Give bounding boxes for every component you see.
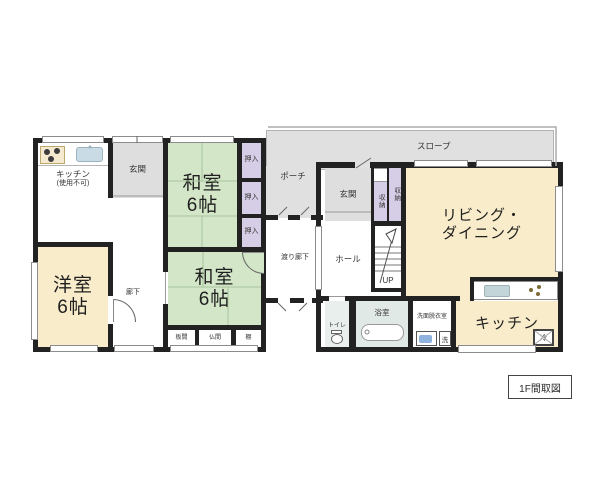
- wall-segment: [242, 178, 261, 182]
- floorplan-1f: スロープ ポーチ キッチン (使用不可) 玄関 和室 6帖 押入 押入 押入 洋…: [0, 0, 600, 499]
- closet-oshiire-1: 押入: [242, 143, 261, 178]
- storage1-label: 収納: [377, 194, 384, 209]
- counter-edge-line: [38, 165, 108, 166]
- washing-machine-icon: 洗: [439, 331, 451, 346]
- bath-label: 浴室: [375, 309, 390, 318]
- wall-segment: [470, 277, 558, 281]
- wall-segment: [320, 162, 355, 168]
- wall-segment: [242, 214, 261, 218]
- room-living-dining: リビング・ ダイニング: [406, 168, 558, 281]
- washitsu2-label: 和室: [194, 267, 234, 289]
- caption-label: 1F間取図: [519, 380, 561, 395]
- room-yoshitsu: 洋室 6帖: [38, 247, 108, 347]
- senmen-label: 洗面脱衣室: [417, 314, 447, 321]
- window: [50, 345, 98, 352]
- wall-segment: [290, 298, 304, 303]
- washitsu1-size: 6帖: [187, 195, 219, 217]
- window: [114, 345, 154, 352]
- wall-segment: [387, 168, 389, 221]
- window: [42, 136, 104, 143]
- window: [31, 262, 38, 340]
- washitsu2-size: 6帖: [199, 289, 231, 311]
- toilet-label: トイレ: [328, 323, 346, 330]
- wall-segment: [33, 242, 113, 247]
- toilet-bowl-icon: [331, 334, 343, 344]
- wall-segment: [349, 296, 356, 347]
- room-genkan-main: 玄関: [325, 168, 371, 221]
- sliding-door-line: [165, 272, 166, 304]
- door-arc-icon: [113, 299, 136, 322]
- tana-label: 棚: [245, 335, 251, 342]
- wall-segment: [108, 324, 113, 352]
- room-hall: ホール: [325, 226, 371, 293]
- living-label-1: リビング・: [442, 207, 522, 224]
- itama-label: 板間: [175, 335, 187, 342]
- window: [414, 160, 468, 167]
- wall-segment: [261, 138, 266, 352]
- wall-segment: [266, 215, 278, 220]
- room-washitsu-1: 和室 6帖: [168, 143, 237, 247]
- refrigerator-icon: 冷: [533, 329, 554, 346]
- window: [112, 136, 163, 143]
- crossing-corridor-label: 渡り廊下: [281, 254, 309, 262]
- genkan-left-label: 玄関: [129, 165, 146, 175]
- caption-box: 1F間取図: [508, 375, 572, 399]
- wall-segment: [408, 296, 413, 347]
- wall-segment: [266, 298, 278, 303]
- washer-label: 洗: [442, 334, 449, 344]
- bathtub-icon: [361, 324, 404, 341]
- vanity-sink-icon: [416, 331, 437, 346]
- wall-segment: [451, 296, 456, 347]
- kitchen-unusable-label-2: (使用不可): [57, 180, 90, 188]
- gas-stove-icon: [40, 146, 65, 164]
- wall-segment: [237, 138, 242, 252]
- room-genkan-left: 玄関: [112, 141, 163, 198]
- stairs-up-label: UP: [375, 276, 401, 285]
- oshiire1-label: 押入: [245, 156, 259, 164]
- window: [458, 345, 536, 353]
- corridor-label: 廊下: [113, 287, 153, 297]
- wall-segment: [163, 252, 168, 272]
- crossing-corridor: 渡り廊下: [272, 220, 318, 298]
- washitsu1-label: 和室: [182, 173, 222, 195]
- wall-segment: [401, 162, 406, 296]
- closet-oshiire-3: 押入: [242, 218, 261, 247]
- window: [476, 160, 552, 167]
- wall-segment: [470, 277, 474, 301]
- oshiire2-label: 押入: [245, 194, 259, 202]
- kitchen-sink-icon: [484, 285, 510, 297]
- oshiire3-label: 押入: [245, 228, 259, 236]
- butsuma-label: 仏間: [209, 335, 221, 342]
- wall-segment: [288, 215, 300, 220]
- porch-label: ポーチ: [266, 172, 320, 182]
- wall-segment: [371, 221, 375, 292]
- slope-label: スロープ: [417, 142, 451, 152]
- hall-label: ホール: [335, 255, 361, 265]
- kitchen-unusable-label-1: キッチン: [56, 170, 90, 180]
- yoshitsu-size: 6帖: [57, 297, 89, 319]
- sink-icon: [76, 147, 103, 162]
- wall-segment: [163, 138, 168, 252]
- storage2-label: 収納: [392, 187, 399, 202]
- door-gap: [329, 296, 345, 301]
- porch-area: ポーチ: [266, 166, 320, 218]
- yoshitsu-label: 洋室: [53, 275, 93, 297]
- genkan-main-label: 玄関: [339, 190, 356, 200]
- entry-step-cell: [373, 168, 388, 182]
- living-label-2: ダイニング: [442, 225, 522, 242]
- kitchen-label: キッチン: [475, 315, 539, 332]
- closet-storage-1: 収納: [373, 182, 388, 221]
- wall-segment: [163, 325, 266, 330]
- fridge-label: 冷: [540, 333, 547, 343]
- window: [555, 186, 563, 272]
- window: [170, 136, 234, 143]
- wall-segment: [108, 138, 113, 198]
- closet-oshiire-2: 押入: [242, 182, 261, 214]
- window: [315, 226, 322, 290]
- wall-segment: [108, 242, 113, 296]
- wall-segment: [371, 168, 374, 221]
- vanity-basin: [419, 335, 432, 343]
- wall-segment: [316, 162, 321, 226]
- window: [170, 345, 258, 352]
